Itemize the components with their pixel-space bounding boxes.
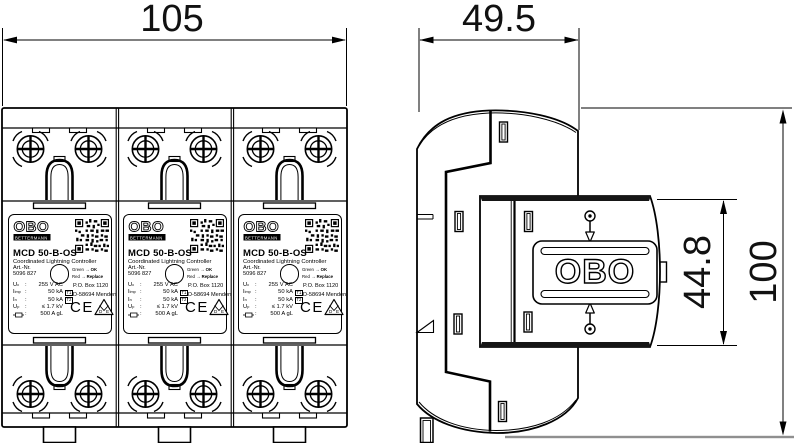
fuse-icon	[243, 312, 254, 318]
svg-text:BETTERMANN: BETTERMANN	[130, 235, 163, 240]
svg-text:E: E	[106, 309, 109, 314]
side-obo-logo-plate: OBO	[533, 241, 657, 304]
obo-bettermann-logo: OBO BETTERMANN	[243, 219, 285, 243]
spec-row-iimp: Iimp : 50 kA T1	[13, 289, 71, 296]
manufacturer-address: P.O. Box 1120 D-58694 Menden	[303, 282, 346, 299]
spec-table: Uc : 255 V AC Iimp : 50 kA T1 In : 50 kA…	[13, 282, 71, 318]
qr-code	[190, 219, 224, 253]
spec-row-fuse: : 500 A gL	[243, 311, 301, 318]
manufacturer-address: P.O. Box 1120 D-58694 Menden	[188, 282, 231, 299]
obo-bettermann-logo: OBO BETTERMANN	[13, 219, 55, 243]
ce-mark: CE	[185, 299, 209, 316]
spec-row-fuse: : 500 A gL	[13, 311, 71, 318]
spec-row-iimp: Iimp : 50 kA T1	[128, 289, 186, 296]
dimension-side-depth: 49.5	[461, 0, 537, 41]
dimension-front-width: 105	[137, 0, 207, 41]
article-number: Art.-Nr. 5096 827	[128, 265, 151, 278]
qr-code	[75, 219, 109, 253]
fuse-icon	[128, 312, 139, 318]
indicator-legend: Green → OK Red → Replace	[302, 266, 333, 280]
spec-row-fuse: : 500 A gL	[128, 311, 186, 318]
model-name: MCD 50-B-OS	[243, 248, 307, 259]
qr-code	[305, 219, 339, 253]
status-indicator-window	[280, 264, 300, 284]
spec-row-uc: Uc : 255 V AC	[243, 282, 301, 289]
vde-mark: D E	[209, 298, 229, 316]
technical-drawing-canvas: OBO 105 49.5 44.8 100 OBO BETTERMANN MCD…	[0, 0, 794, 443]
article-number: Art.-Nr. 5096 827	[13, 265, 36, 278]
article-number: Art.-Nr. 5096 827	[243, 265, 266, 278]
spec-row-iimp: Iimp : 50 kA T1	[243, 289, 301, 296]
vde-mark: D E	[94, 298, 114, 316]
vde-mark: D E	[324, 298, 344, 316]
device-label: OBO BETTERMANN MCD 50-B-OS Coordinated L…	[238, 214, 342, 334]
spec-table: Uc : 255 V AC Iimp : 50 kA T1 In : 50 kA…	[128, 282, 186, 318]
spec-row-in: In : 50 kA T2	[243, 297, 301, 304]
svg-text:OBO: OBO	[129, 219, 165, 236]
spec-row-uc: Uc : 255 V AC	[13, 282, 71, 289]
status-indicator-window	[50, 264, 70, 284]
device-label: OBO BETTERMANN MCD 50-B-OS Coordinated L…	[8, 214, 112, 334]
spec-row-up: Up : ≤ 1.7 kV	[243, 304, 301, 311]
manufacturer-address: P.O. Box 1120 D-58694 Menden	[73, 282, 116, 299]
fuse-icon	[13, 312, 24, 318]
side-obo-logo: OBO	[555, 253, 635, 291]
spec-row-in: In : 50 kA T2	[13, 297, 71, 304]
svg-text:E: E	[221, 309, 224, 314]
status-indicator-window	[165, 264, 185, 284]
spec-row-uc: Uc : 255 V AC	[128, 282, 186, 289]
svg-text:BETTERMANN: BETTERMANN	[15, 235, 48, 240]
svg-text:OBO: OBO	[14, 219, 50, 236]
svg-text:E: E	[336, 309, 339, 314]
side-view: OBO	[417, 110, 667, 442]
spec-table: Uc : 255 V AC Iimp : 50 kA T1 In : 50 kA…	[243, 282, 301, 318]
line-art: OBO	[0, 0, 794, 443]
ce-mark: CE	[300, 299, 324, 316]
ce-mark: CE	[70, 299, 94, 316]
indicator-legend: Green → OK Red → Replace	[72, 266, 103, 280]
model-name: MCD 50-B-OS	[128, 248, 192, 259]
spec-row-up: Up : ≤ 1.7 kV	[13, 304, 71, 311]
spec-row-in: In : 50 kA T2	[128, 297, 186, 304]
dimension-total-height: 100	[743, 192, 783, 352]
svg-text:BETTERMANN: BETTERMANN	[245, 235, 278, 240]
indicator-legend: Green → OK Red → Replace	[187, 266, 218, 280]
svg-text:OBO: OBO	[244, 219, 280, 236]
model-name: MCD 50-B-OS	[13, 248, 77, 259]
dimension-module-height: 44.8	[677, 192, 717, 352]
obo-bettermann-logo: OBO BETTERMANN	[128, 219, 170, 243]
spec-row-up: Up : ≤ 1.7 kV	[128, 304, 186, 311]
device-label: OBO BETTERMANN MCD 50-B-OS Coordinated L…	[123, 214, 227, 334]
